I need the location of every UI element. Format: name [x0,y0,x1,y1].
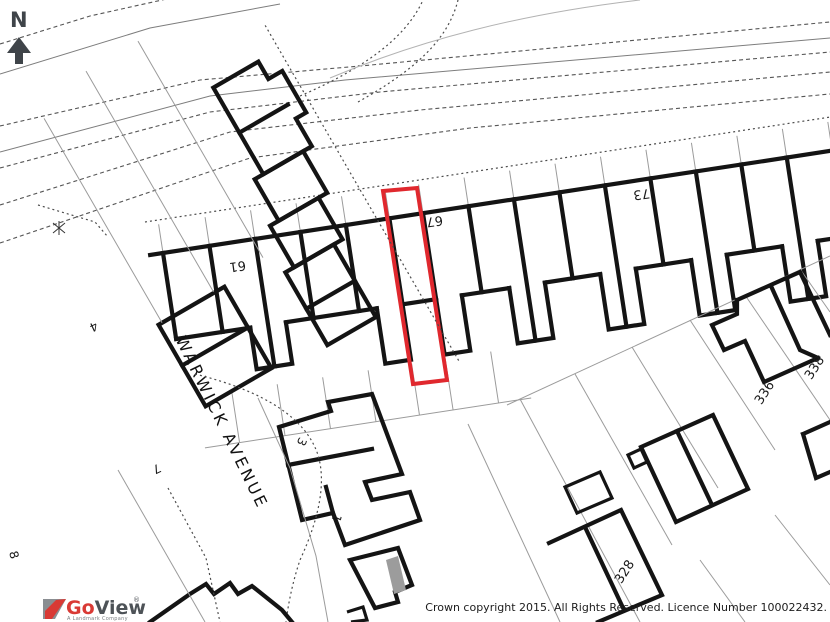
terrace-row-north [146,121,830,452]
building-bottom-center [150,583,292,622]
goview-logo: GoView ® A Landmark Company [43,596,146,622]
house-number-338: 338 [802,354,828,383]
house-number-labels: 61 67 73 4 7 8 3 1 336 338 328 [6,185,828,587]
copyright-notice: Crown copyright 2015. All Rights Reserve… [425,601,827,614]
map-screenshot: { "map": { "north_label": "N", "street":… [0,0,830,622]
house-number-7: 7 [150,461,163,477]
house-number-328: 328 [612,558,638,587]
map-canvas: N [0,0,830,622]
north-label: N [10,8,28,32]
building-group-328-338 [549,272,830,622]
road-edge-line [258,398,328,622]
terrace-front-boundary [145,116,830,222]
railway-lines [0,0,830,243]
house-number-3: 3 [294,435,310,448]
road-boundary-dotted [38,205,108,237]
survey-mark-icon [53,221,65,235]
house-number-336: 336 [752,379,778,408]
house-number-4: 4 [87,319,100,335]
registered-mark: ® [133,596,140,604]
goview-tagline: A Landmark Company [67,616,128,622]
house-number-73: 73 [632,185,650,202]
building-group-3-1 [279,394,420,622]
house-number-67: 67 [425,212,443,229]
house-number-61: 61 [228,257,246,274]
house-number-8: 8 [6,549,22,560]
